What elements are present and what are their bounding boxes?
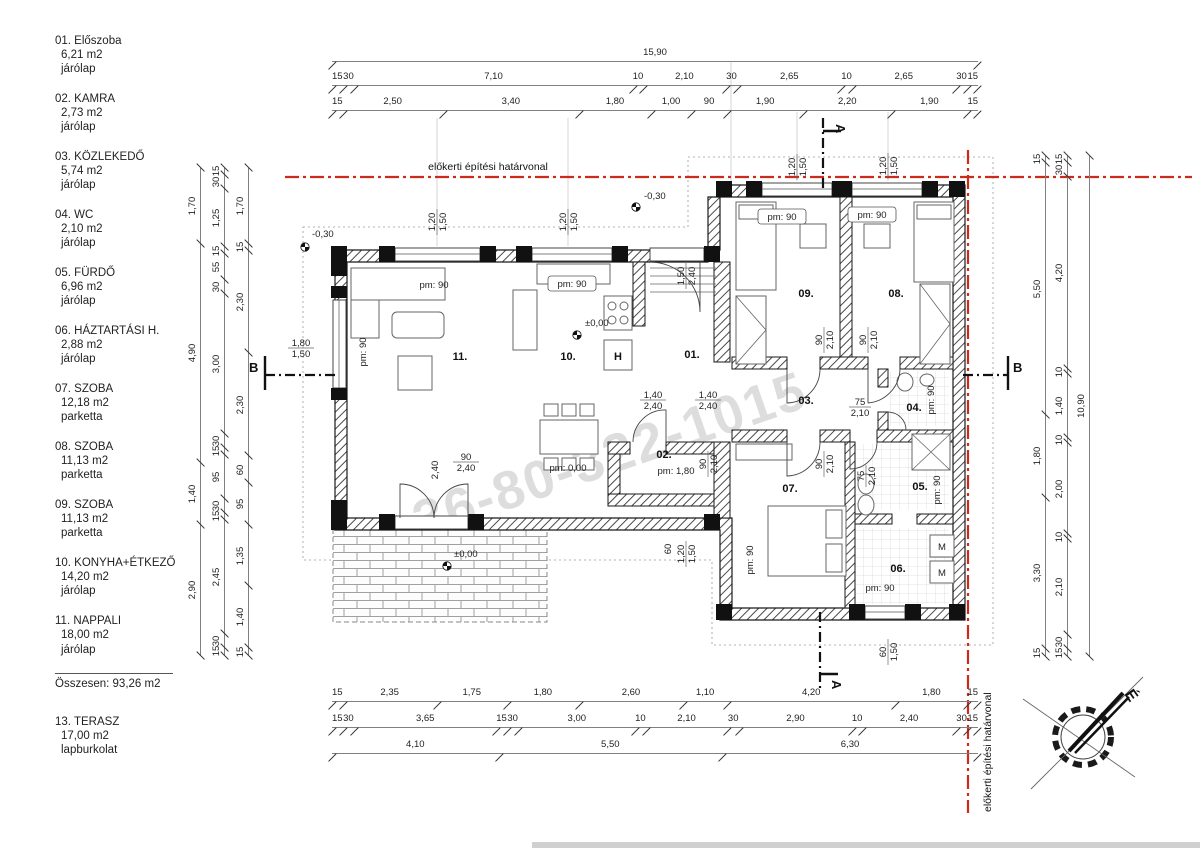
- dim-segment: 1,10: [683, 686, 727, 702]
- dim-value: 2,90: [188, 581, 198, 600]
- dim-value: 15: [212, 646, 222, 657]
- svg-text:1,40: 1,40: [699, 390, 718, 401]
- dim-segment: 2,65: [852, 70, 956, 86]
- dim-segment: 30: [1067, 163, 1081, 177]
- dim-segment: 5,50: [1045, 163, 1059, 415]
- dim-segment: 1,75: [437, 686, 507, 702]
- room-label-04: 04.: [906, 402, 921, 414]
- elevation-zero: ±0,00: [454, 549, 478, 560]
- dim-value: 95: [236, 499, 246, 510]
- dim-value: 2,30: [236, 396, 246, 415]
- sill-label: pm: 90: [926, 385, 937, 414]
- sill-label-pantry: pm: 1,80: [658, 466, 695, 477]
- dim-value: 5,50: [1033, 280, 1043, 299]
- dim-value: 3,30: [1033, 564, 1043, 583]
- floor-plan-page: +36-80-322-1015: [0, 0, 1200, 848]
- svg-text:90: 90: [858, 335, 869, 346]
- dim-value: 10: [1055, 531, 1065, 542]
- dim-segment: 2,10: [643, 70, 725, 86]
- room-label-11: 11.: [453, 351, 468, 363]
- dim-segment: 15: [967, 70, 978, 86]
- dim-segment: 95: [224, 455, 238, 499]
- dim-segment: 10: [633, 70, 644, 86]
- dim-segment: 2,30: [248, 353, 262, 456]
- terrace-area: [333, 530, 547, 622]
- svg-text:90: 90: [814, 335, 825, 346]
- dim-segment: 15: [248, 648, 262, 655]
- svg-text:2,40: 2,40: [687, 267, 698, 286]
- room-label-08: 08.: [888, 288, 903, 300]
- dim-segment: 3,00: [518, 712, 635, 728]
- svg-text:1,50: 1,50: [889, 157, 900, 176]
- svg-text:2,40: 2,40: [699, 401, 718, 412]
- dim-segment: 2,60: [579, 686, 683, 702]
- dim-segment: 2,40: [862, 712, 955, 728]
- dim-segment: 2,20: [803, 95, 891, 111]
- dim-segment: 15: [332, 70, 343, 86]
- sill-label: pm: 90: [932, 475, 943, 504]
- machine-m1-label: M: [938, 542, 946, 553]
- dim-segment: 2,90: [739, 712, 852, 728]
- svg-text:1,50: 1,50: [798, 158, 809, 177]
- dim-value: 15: [1033, 647, 1043, 658]
- svg-text:90: 90: [461, 452, 472, 463]
- sill-label: pm: 90: [358, 337, 369, 366]
- dim-segment: 15: [967, 95, 978, 111]
- svg-text:1,50: 1,50: [292, 349, 311, 360]
- elevation-minus-030: -0,30: [644, 191, 666, 202]
- dim-segment: 30: [224, 175, 238, 189]
- room-label-02: 02.: [656, 449, 671, 461]
- svg-text:1,20: 1,20: [787, 158, 798, 177]
- dim-segment: 30: [507, 712, 519, 728]
- elevation-zero: ±0,00: [585, 318, 609, 329]
- dim-segment: 30: [224, 434, 238, 448]
- dim-value: 1,35: [236, 546, 246, 565]
- dim-segment: 15: [332, 95, 343, 111]
- svg-text:2,10: 2,10: [869, 331, 880, 350]
- dim-segment: 15: [224, 513, 238, 520]
- svg-text:60: 60: [663, 544, 674, 555]
- dim-segment: 90: [691, 95, 727, 111]
- legend-room-name: 01. Előszoba: [55, 34, 235, 48]
- level-marker-icon: [632, 203, 640, 211]
- svg-text:2,10: 2,10: [851, 408, 870, 419]
- dim-chain-top-total: 15,90: [332, 46, 978, 62]
- legend-total: Összesen: 93,26 m2: [55, 673, 173, 691]
- svg-text:1,50: 1,50: [676, 267, 687, 286]
- scan-edge-strip: [532, 842, 1200, 848]
- dim-segment: 3,40: [443, 95, 579, 111]
- svg-text:1,50: 1,50: [569, 213, 580, 232]
- dim-chain-right-total: 10,90: [1089, 156, 1103, 656]
- dim-value: 60: [236, 464, 246, 475]
- legend-room-floor: járólap: [55, 120, 235, 134]
- svg-text:2,10: 2,10: [867, 467, 878, 486]
- legend-terrace-item: 13. TERASZ 17,00 m2 lapburkolat: [55, 715, 235, 757]
- dim-segment: 15: [967, 712, 978, 728]
- room-label-03: 03.: [798, 395, 813, 407]
- dim-segment: 1,90: [891, 95, 967, 111]
- dim-segment: 1,80: [579, 95, 651, 111]
- dim-value: 10: [1055, 435, 1065, 446]
- dim-segment: 1,40: [248, 586, 262, 649]
- sill-label: pm: 90: [745, 545, 756, 574]
- dim-segment: 2,65: [737, 70, 841, 86]
- svg-text:1,80: 1,80: [292, 338, 311, 349]
- room-label-06: 06.: [890, 563, 905, 575]
- sill-label: pm: 90: [557, 279, 586, 290]
- svg-text:2,10: 2,10: [825, 331, 836, 350]
- dim-value: 10: [1055, 366, 1065, 377]
- legend-room-floor: lapburkolat: [55, 743, 235, 757]
- dim-segment: 3,30: [1045, 498, 1059, 649]
- dim-value: 1,40: [1055, 397, 1065, 416]
- room-label-07: 07.: [782, 483, 797, 495]
- svg-text:2,10: 2,10: [825, 455, 836, 474]
- svg-text:1,50: 1,50: [438, 213, 449, 232]
- dim-segment: 2,50: [343, 95, 443, 111]
- dim-segment: 2,00: [1067, 443, 1081, 535]
- dim-value: 1,70: [236, 197, 246, 216]
- level-marker-icon: [573, 331, 581, 339]
- dim-segment: 2,10: [1067, 539, 1081, 635]
- dim-segment: 15: [224, 448, 238, 455]
- dim-chain-left-inner: 1,70152,302,3060951,351,4015: [248, 168, 262, 655]
- witness-lines: [437, 62, 888, 246]
- svg-text:1,20: 1,20: [676, 545, 687, 564]
- dim-segment: 1,35: [248, 525, 262, 585]
- dim-segment: 1,80: [507, 686, 579, 702]
- dim-segment: 3,65: [354, 712, 496, 728]
- dim-segment: 5,50: [499, 738, 722, 754]
- dim-segment: 7,10: [354, 70, 632, 86]
- room-label-10: 10.: [560, 351, 575, 363]
- dim-chain-bottom-totals: 4,105,506,30: [332, 738, 978, 754]
- dim-segment: 95: [248, 483, 262, 525]
- dim-value: 4,20: [1055, 264, 1065, 283]
- svg-text:1,40: 1,40: [644, 390, 663, 401]
- dim-segment: 55: [224, 254, 238, 280]
- dim-segment: 4,90: [200, 244, 214, 463]
- legend-room-name: 13. TERASZ: [55, 715, 235, 729]
- svg-text:1,20: 1,20: [878, 157, 889, 176]
- dim-segment: 30: [956, 712, 968, 728]
- dim-segment: 10,90: [1089, 156, 1103, 656]
- dim-segment: 15: [224, 168, 238, 175]
- svg-text:1,20: 1,20: [558, 213, 569, 232]
- dim-segment: 4,20: [727, 686, 895, 702]
- svg-text:75: 75: [856, 471, 867, 482]
- svg-text:1,50: 1,50: [889, 643, 900, 662]
- elevation-minus-030: -0,30: [312, 229, 334, 240]
- boundary-label-top: előkerti építési határvonal: [428, 161, 548, 173]
- svg-text:2,10: 2,10: [709, 455, 720, 474]
- sill-label: pm: 90: [865, 583, 894, 594]
- dim-segment: 15: [1067, 156, 1081, 163]
- svg-text:90: 90: [814, 459, 825, 470]
- dim-segment: 30: [1067, 635, 1081, 649]
- dim-value: 1,40: [236, 608, 246, 627]
- svg-text:90: 90: [698, 459, 709, 470]
- room-label-05: 05.: [912, 481, 927, 493]
- dim-segment: 10: [635, 712, 646, 728]
- dim-segment: 15,90: [332, 46, 978, 62]
- dim-segment: 30: [343, 70, 355, 86]
- appliance-h-label: H: [614, 351, 622, 363]
- dim-value: 1,25: [212, 209, 222, 228]
- svg-text:2,40: 2,40: [430, 461, 441, 480]
- dim-chain-bottom-1: 152,351,751,802,601,104,201,8015: [332, 686, 978, 702]
- dim-segment: 30: [727, 712, 739, 728]
- dim-segment: 10: [841, 70, 852, 86]
- sill-label-terrace-door: pm: 0,00: [550, 463, 587, 474]
- legend-room-name: 02. KAMRA: [55, 92, 235, 106]
- dim-segment: 6,30: [722, 738, 978, 754]
- svg-text:1,50: 1,50: [687, 545, 698, 564]
- room-label-09: 09.: [798, 288, 813, 300]
- dim-segment: 1,80: [895, 686, 967, 702]
- level-marker-icon: [301, 243, 309, 251]
- legend-room-item: 01. Előszoba 6,21 m2 járólap: [55, 34, 235, 76]
- dim-value: 10,90: [1077, 394, 1087, 418]
- svg-text:2,40: 2,40: [457, 463, 476, 474]
- dim-value: 4,90: [188, 344, 198, 363]
- dim-chain-top-2: 15307,10102,10302,65102,653015: [332, 70, 978, 86]
- dim-value: 3,00: [212, 354, 222, 373]
- dim-segment: 15: [967, 686, 978, 702]
- legend-room-name: 03. KÖZLEKEDŐ: [55, 150, 235, 164]
- dim-segment: 15: [332, 712, 343, 728]
- dim-value: 15: [236, 646, 246, 657]
- dim-segment: 2,35: [343, 686, 437, 702]
- dim-segment: 1,70: [248, 168, 262, 244]
- legend-room-area: 17,00 m2: [55, 729, 235, 743]
- sill-label: pm: 90: [857, 210, 886, 221]
- dim-segment: 15: [332, 686, 343, 702]
- legend-room-area: 2,73 m2: [55, 106, 235, 120]
- dim-segment: 4,20: [1067, 177, 1081, 370]
- sill-label: pm: 90: [419, 280, 448, 291]
- dim-segment: 15: [1067, 649, 1081, 656]
- legend-room-floor: járólap: [55, 62, 235, 76]
- boundary-label-right: előkerti építési határvonal: [982, 692, 994, 812]
- dim-segment: 15: [248, 244, 262, 251]
- svg-text:60: 60: [878, 647, 889, 658]
- legend-room-area: 6,21 m2: [55, 48, 235, 62]
- dim-value: 2,00: [1055, 479, 1065, 498]
- dim-segment: 30: [726, 70, 738, 86]
- dim-value: 1,80: [1033, 447, 1043, 466]
- dim-segment: 1,90: [727, 95, 803, 111]
- svg-text:75: 75: [855, 397, 866, 408]
- legend-room-item: 02. KAMRA 2,73 m2 járólap: [55, 92, 235, 134]
- dim-segment: 10: [852, 712, 863, 728]
- dim-chain-bottom-2: 15303,6515303,00102,10302,90102,403015: [332, 712, 978, 728]
- dim-value: 1,40: [188, 485, 198, 504]
- section-a-label-top: A: [833, 124, 848, 134]
- machine-m2-label: M: [938, 568, 946, 579]
- dim-value: 2,30: [236, 293, 246, 312]
- dim-value: 1,70: [188, 197, 198, 216]
- dim-value: 95: [212, 471, 222, 482]
- dim-value: 55: [212, 262, 222, 273]
- sill-label: pm: 90: [767, 212, 796, 223]
- svg-text:2,40: 2,40: [644, 401, 663, 412]
- dim-value: 2,45: [212, 568, 222, 587]
- svg-text:1,20: 1,20: [427, 213, 438, 232]
- dim-segment: 15: [496, 712, 507, 728]
- dim-segment: 30: [224, 280, 238, 294]
- dim-segment: 30: [956, 70, 968, 86]
- dim-segment: 30: [343, 712, 355, 728]
- room-label-01: 01.: [684, 349, 699, 361]
- dim-chain-top-3: 152,503,401,801,00901,902,201,9015: [332, 95, 978, 111]
- dim-segment: 4,10: [332, 738, 499, 754]
- level-marker-icon: [443, 562, 451, 570]
- dim-value: 15: [1055, 647, 1065, 658]
- dim-segment: 1,00: [651, 95, 691, 111]
- dim-segment: 60: [248, 456, 262, 483]
- dim-segment: 2,10: [646, 712, 728, 728]
- dim-segment: 2,30: [248, 251, 262, 354]
- dim-value: 2,10: [1055, 578, 1065, 597]
- section-b-label-right: B: [1013, 360, 1022, 375]
